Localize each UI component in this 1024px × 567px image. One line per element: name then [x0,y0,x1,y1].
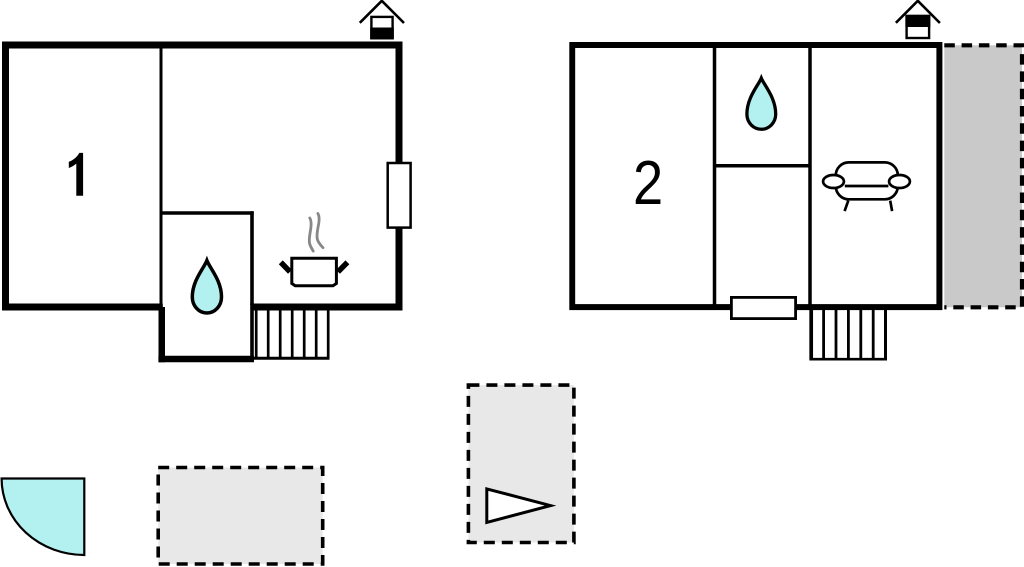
svg-text:2: 2 [633,149,663,218]
